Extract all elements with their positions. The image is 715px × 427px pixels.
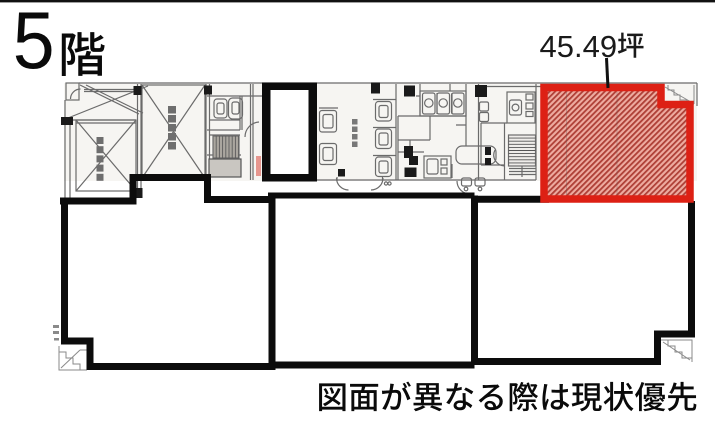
svg-text:5: 5 (13, 0, 55, 86)
